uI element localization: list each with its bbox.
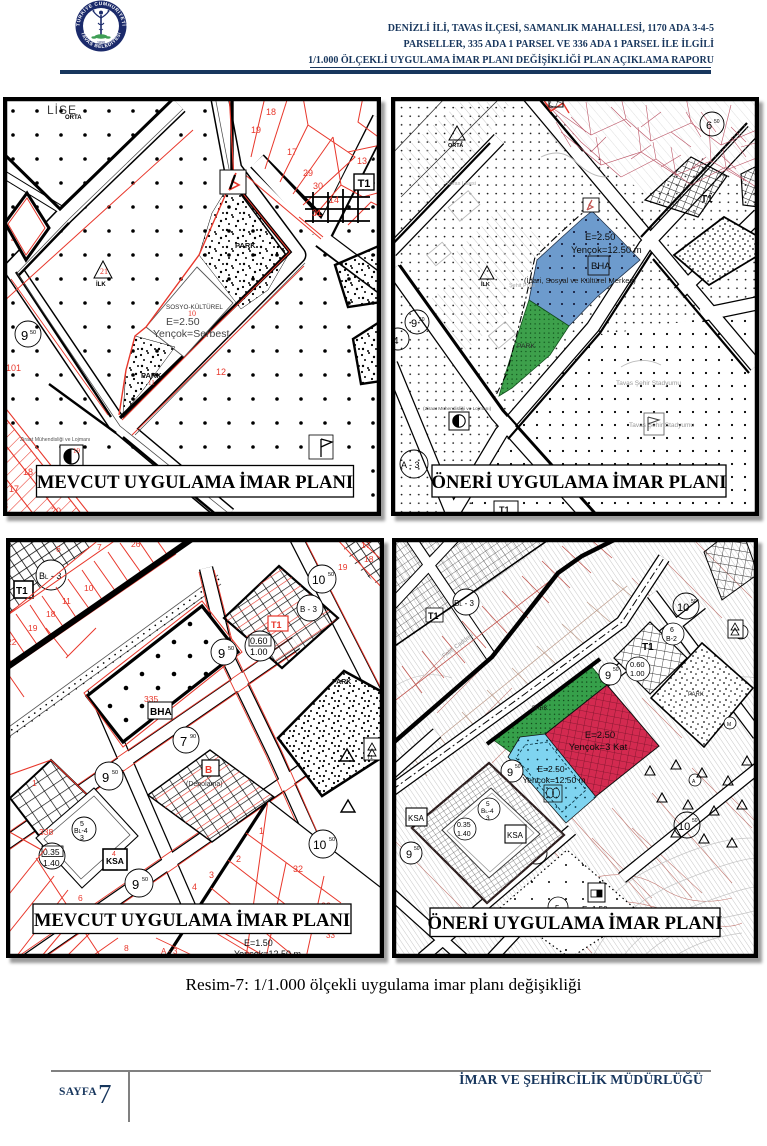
svg-text:1.40: 1.40 xyxy=(43,858,60,868)
svg-text:Tavas Şehir Stadyumu: Tavas Şehir Stadyumu xyxy=(629,422,694,429)
svg-text:Ziraat Mühendisliği ve Lojmanı: Ziraat Mühendisliği ve Lojmanı xyxy=(20,437,90,443)
svg-text:32: 32 xyxy=(293,864,303,874)
svg-text:T1: T1 xyxy=(271,620,282,630)
svg-text:KSA: KSA xyxy=(507,831,524,840)
svg-text:0.35: 0.35 xyxy=(457,822,471,829)
svg-text:KSA: KSA xyxy=(408,814,425,823)
svg-text:50: 50 xyxy=(30,330,36,336)
svg-text:50: 50 xyxy=(515,764,521,770)
svg-text:(İdari, Sosyal ve Kültürel Mer: (İdari, Sosyal ve Kültürel Merkez) xyxy=(524,276,636,285)
svg-text:BHA: BHA xyxy=(150,707,172,718)
svg-text:4: 4 xyxy=(112,851,116,858)
svg-text:9: 9 xyxy=(21,328,28,343)
svg-text:50: 50 xyxy=(714,119,720,125)
svg-text:E=2.50: E=2.50 xyxy=(585,730,615,741)
svg-text:10: 10 xyxy=(677,602,689,614)
svg-text:Şehit Polis: Şehit Polis xyxy=(509,283,535,289)
svg-text:19: 19 xyxy=(338,562,348,572)
svg-text:T1: T1 xyxy=(358,178,371,190)
svg-text:BL-4: BL-4 xyxy=(481,808,494,815)
svg-text:9: 9 xyxy=(218,646,225,661)
svg-text:3: 3 xyxy=(486,815,490,822)
svg-text:E=1.50: E=1.50 xyxy=(244,938,273,948)
svg-text:19: 19 xyxy=(28,623,38,633)
svg-text:PARK: PARK xyxy=(532,706,548,712)
svg-text:18: 18 xyxy=(23,467,33,477)
svg-text:50: 50 xyxy=(692,818,698,824)
svg-text:Yençok=12.50 m: Yençok=12.50 m xyxy=(571,245,642,256)
svg-text:13: 13 xyxy=(357,156,367,166)
svg-text:B: B xyxy=(205,765,212,776)
svg-text:6: 6 xyxy=(78,893,83,903)
svg-text:6: 6 xyxy=(56,544,61,554)
svg-text:338: 338 xyxy=(39,827,53,837)
svg-text:7: 7 xyxy=(180,734,187,749)
svg-text:50: 50 xyxy=(142,877,148,883)
svg-text:17: 17 xyxy=(287,147,297,157)
svg-text:PARK: PARK xyxy=(332,679,351,686)
svg-text:3: 3 xyxy=(209,870,214,880)
svg-text:6: 6 xyxy=(706,120,712,132)
svg-text:Tavas Şehir Stadyumu: Tavas Şehir Stadyumu xyxy=(616,380,681,387)
svg-text:(Depolama): (Depolama) xyxy=(186,781,223,788)
svg-text:MEVCUT UYGULAMA İMAR PLANI: MEVCUT UYGULAMA İMAR PLANI xyxy=(34,910,350,931)
svg-text:29: 29 xyxy=(303,168,313,178)
svg-text:1: 1 xyxy=(32,778,37,788)
svg-text:T1: T1 xyxy=(367,755,373,761)
svg-text:A - 3: A - 3 xyxy=(401,460,420,470)
svg-text:İLK: İLK xyxy=(481,281,490,288)
svg-text:B - 3: B - 3 xyxy=(300,605,317,614)
svg-text:6: 6 xyxy=(670,627,674,634)
svg-text:3: 3 xyxy=(80,835,84,842)
svg-text:2: 2 xyxy=(236,854,241,864)
svg-text:9: 9 xyxy=(132,877,139,892)
svg-text:Yençok=Serbest: Yençok=Serbest xyxy=(153,328,229,340)
svg-text:PARK: PARK xyxy=(688,692,704,698)
svg-text:10: 10 xyxy=(313,838,327,852)
svg-text:7: 7 xyxy=(97,542,102,552)
svg-text:0.60: 0.60 xyxy=(250,636,268,646)
svg-text:M: M xyxy=(727,722,731,728)
svg-text:5: 5 xyxy=(486,801,490,808)
svg-text:9: 9 xyxy=(411,318,417,330)
svg-text:ORTA: ORTA xyxy=(448,143,463,149)
svg-text:50: 50 xyxy=(112,770,118,776)
svg-text:5: 5 xyxy=(80,821,84,828)
svg-text:ORTA: ORTA xyxy=(65,115,82,121)
svg-text:Tavas Lisesi: Tavas Lisesi xyxy=(446,181,476,187)
svg-text:E=2.50: E=2.50 xyxy=(166,316,200,328)
svg-text:19: 19 xyxy=(251,125,261,135)
svg-text:T1: T1 xyxy=(701,194,713,205)
svg-text:9: 9 xyxy=(406,849,412,861)
svg-text:T1: T1 xyxy=(642,642,654,653)
svg-text:11: 11 xyxy=(148,379,155,387)
svg-text:PARK: PARK xyxy=(235,241,256,250)
svg-text:17: 17 xyxy=(9,484,19,494)
svg-text:50: 50 xyxy=(328,572,334,578)
svg-text:1.40: 1.40 xyxy=(457,831,471,838)
svg-text:18: 18 xyxy=(364,554,374,564)
svg-text:90: 90 xyxy=(190,734,196,740)
svg-text:10: 10 xyxy=(312,573,326,587)
svg-text:1.00: 1.00 xyxy=(630,669,645,678)
svg-text:50: 50 xyxy=(419,317,425,323)
svg-text:MEVCUT UYGULAMA İMAR PLANI: MEVCUT UYGULAMA İMAR PLANI xyxy=(37,472,353,493)
svg-text:1.00: 1.00 xyxy=(250,647,268,657)
svg-text:9: 9 xyxy=(102,770,109,785)
svg-text:T1: T1 xyxy=(16,586,28,597)
svg-text:9: 9 xyxy=(605,670,611,682)
svg-text:BHA: BHA xyxy=(591,261,611,272)
svg-text:E=2.50: E=2.50 xyxy=(537,764,564,774)
svg-text:8: 8 xyxy=(124,943,129,953)
svg-text:0.60: 0.60 xyxy=(630,660,645,669)
svg-text:E=2.50: E=2.50 xyxy=(585,232,615,243)
svg-text:18: 18 xyxy=(46,609,56,619)
svg-text:10: 10 xyxy=(678,821,690,833)
svg-text:B-2: B-2 xyxy=(666,636,677,643)
svg-text:19: 19 xyxy=(73,447,81,455)
svg-text:31: 31 xyxy=(312,208,322,218)
svg-text:10: 10 xyxy=(84,583,94,593)
svg-text:50: 50 xyxy=(329,837,335,843)
svg-text:1890: 1890 xyxy=(97,41,105,45)
svg-text:Yençok=3 Kat: Yençok=3 Kat xyxy=(569,742,628,753)
svg-text:101: 101 xyxy=(6,363,21,373)
svg-text:50: 50 xyxy=(691,599,697,605)
svg-text:PARK: PARK xyxy=(517,343,535,350)
svg-text:Yençok=12.50 m: Yençok=12.50 m xyxy=(522,775,585,785)
svg-text:14: 14 xyxy=(329,195,339,205)
svg-text:50: 50 xyxy=(228,646,234,652)
svg-text:(Ziraat Mühendisliği ve Lojman: (Ziraat Mühendisliği ve Lojmanı) xyxy=(423,406,492,412)
svg-text:4: 4 xyxy=(192,882,197,892)
svg-text:50: 50 xyxy=(613,667,619,673)
svg-text:50: 50 xyxy=(414,846,420,852)
svg-text:BL-4: BL-4 xyxy=(74,828,88,835)
svg-text:İLK: İLK xyxy=(96,281,106,288)
svg-text:18: 18 xyxy=(266,107,276,117)
svg-text:11: 11 xyxy=(62,596,71,606)
svg-text:9: 9 xyxy=(507,767,513,779)
svg-text:12: 12 xyxy=(216,367,226,377)
svg-text:30: 30 xyxy=(313,181,323,191)
svg-text:1: 1 xyxy=(259,826,264,836)
svg-text:ÖNERİ UYGULAMA İMAR PLANI: ÖNERİ UYGULAMA İMAR PLANI xyxy=(432,472,727,493)
svg-text:ÖNERİ UYGULAMA İMAR PLANI: ÖNERİ UYGULAMA İMAR PLANI xyxy=(428,913,723,934)
svg-text:21: 21 xyxy=(100,267,108,276)
